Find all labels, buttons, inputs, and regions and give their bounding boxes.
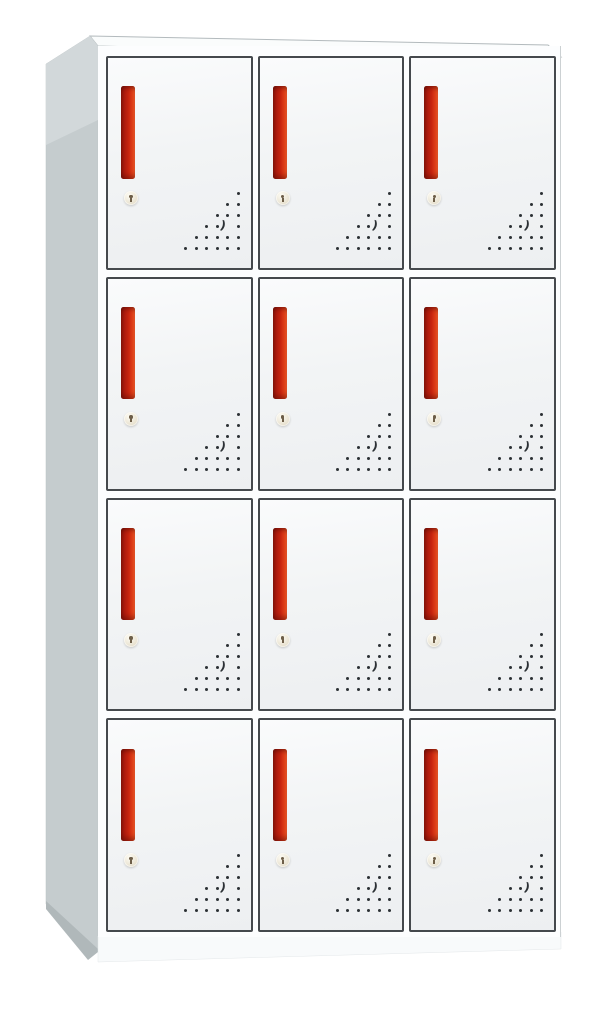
vent-hole — [205, 666, 208, 669]
vent-hole — [184, 688, 187, 691]
vent-hole — [216, 225, 219, 228]
keyhole-lock-icon — [276, 191, 290, 205]
vent-holes: ) — [479, 413, 543, 480]
vent-hole — [237, 236, 240, 239]
vent-hole — [388, 666, 391, 669]
vent-hole — [237, 898, 240, 901]
vent-hole — [216, 876, 219, 879]
vent-hole — [226, 644, 229, 647]
vent-hole — [540, 435, 543, 438]
vent-hole — [367, 247, 370, 250]
vent-hole — [378, 247, 381, 250]
vent-hole — [540, 887, 543, 890]
vent-hole — [498, 677, 501, 680]
vent-hole — [357, 446, 360, 449]
vent-hole — [226, 876, 229, 879]
vent-hole — [388, 677, 391, 680]
vent-hole — [195, 688, 198, 691]
vent-hole — [357, 887, 360, 890]
keyhole-lock-icon — [124, 191, 138, 205]
vent-hole — [540, 468, 543, 471]
vent-hole — [216, 909, 219, 912]
vent-hole — [367, 887, 370, 890]
vent-hole — [519, 898, 522, 901]
vent-hole — [540, 655, 543, 658]
locker-door: ) — [409, 718, 556, 932]
door-handle-icon — [424, 307, 438, 399]
vent-hole — [216, 887, 219, 890]
vent-hole — [388, 413, 391, 416]
vent-hole — [488, 688, 491, 691]
vent-crescent-hole: ) — [370, 881, 385, 897]
vent-hole — [237, 909, 240, 912]
door-handle-icon — [273, 307, 287, 399]
vent-hole — [378, 655, 381, 658]
vent-hole — [540, 203, 543, 206]
vent-hole — [237, 666, 240, 669]
vent-hole — [540, 865, 543, 868]
vent-hole — [530, 424, 533, 427]
vent-hole — [388, 435, 391, 438]
vent-hole — [367, 677, 370, 680]
vent-crescent-hole: ) — [522, 218, 537, 234]
vent-hole — [378, 909, 381, 912]
vent-hole — [205, 677, 208, 680]
cabinet-side-panel — [46, 36, 98, 959]
vent-hole — [498, 457, 501, 460]
vent-hole — [509, 468, 512, 471]
vent-hole — [530, 909, 533, 912]
vent-hole — [378, 688, 381, 691]
vent-hole — [205, 887, 208, 890]
vent-hole — [540, 236, 543, 239]
vent-hole — [498, 898, 501, 901]
vent-hole — [357, 909, 360, 912]
locker-door: ) — [409, 277, 556, 491]
vent-hole — [367, 666, 370, 669]
vent-hole — [346, 468, 349, 471]
vent-hole — [195, 677, 198, 680]
vent-hole — [357, 468, 360, 471]
vent-hole — [488, 909, 491, 912]
vent-hole — [226, 435, 229, 438]
vent-hole — [237, 677, 240, 680]
vent-hole — [498, 247, 501, 250]
vent-hole — [195, 898, 198, 901]
vent-hole — [388, 633, 391, 636]
vent-hole — [530, 236, 533, 239]
vent-hole — [519, 666, 522, 669]
vent-hole — [378, 424, 381, 427]
vent-crescent-hole: ) — [219, 218, 234, 234]
door-handle-icon — [121, 528, 135, 620]
vent-crescent-hole: ) — [219, 660, 234, 676]
vent-hole — [530, 898, 533, 901]
vent-hole — [519, 655, 522, 658]
vent-hole — [378, 898, 381, 901]
door-handle-icon — [273, 528, 287, 620]
vent-hole — [367, 236, 370, 239]
vent-hole — [346, 688, 349, 691]
vent-hole — [346, 898, 349, 901]
vent-hole — [540, 688, 543, 691]
vent-hole — [184, 247, 187, 250]
vent-hole — [226, 203, 229, 206]
locker-door-grid: ) ) ) ) ) ) ) ) ) — [106, 56, 556, 932]
vent-hole — [216, 457, 219, 460]
keyhole-lock-icon — [276, 853, 290, 867]
vent-hole — [216, 214, 219, 217]
vent-crescent-hole: ) — [370, 218, 385, 234]
vent-holes: ) — [327, 854, 391, 921]
vent-hole — [388, 854, 391, 857]
vent-hole — [346, 677, 349, 680]
vent-hole — [216, 468, 219, 471]
vent-hole — [195, 247, 198, 250]
vent-hole — [388, 236, 391, 239]
vent-hole — [205, 446, 208, 449]
vent-hole — [519, 909, 522, 912]
vent-holes: ) — [176, 192, 240, 259]
vent-hole — [216, 898, 219, 901]
vent-holes: ) — [176, 633, 240, 700]
vent-hole — [540, 225, 543, 228]
vent-hole — [336, 468, 339, 471]
vent-hole — [509, 457, 512, 460]
vent-hole — [530, 214, 533, 217]
vent-hole — [388, 192, 391, 195]
vent-hole — [530, 247, 533, 250]
locker-door: ) — [409, 498, 556, 712]
vent-hole — [216, 236, 219, 239]
vent-hole — [509, 446, 512, 449]
vent-hole — [519, 247, 522, 250]
vent-hole — [388, 898, 391, 901]
vent-hole — [336, 688, 339, 691]
vent-hole — [205, 457, 208, 460]
vent-hole — [388, 424, 391, 427]
vent-hole — [509, 236, 512, 239]
vent-hole — [519, 688, 522, 691]
keyhole-lock-icon — [427, 191, 441, 205]
vent-hole — [357, 898, 360, 901]
vent-hole — [237, 413, 240, 416]
locker-door: ) — [409, 56, 556, 270]
vent-hole — [519, 887, 522, 890]
vent-hole — [357, 688, 360, 691]
vent-hole — [346, 247, 349, 250]
vent-hole — [540, 457, 543, 460]
vent-hole — [509, 247, 512, 250]
vent-hole — [540, 413, 543, 416]
vent-hole — [367, 655, 370, 658]
vent-hole — [378, 435, 381, 438]
vent-hole — [519, 435, 522, 438]
vent-hole — [498, 688, 501, 691]
vent-hole — [388, 457, 391, 460]
vent-hole — [226, 247, 229, 250]
vent-hole — [216, 666, 219, 669]
vent-hole — [226, 909, 229, 912]
vent-hole — [367, 898, 370, 901]
vent-hole — [388, 655, 391, 658]
vent-hole — [540, 898, 543, 901]
vent-hole — [509, 909, 512, 912]
vent-hole — [237, 688, 240, 691]
keyhole-lock-icon — [124, 853, 138, 867]
vent-hole — [388, 468, 391, 471]
door-handle-icon — [273, 86, 287, 178]
vent-hole — [336, 909, 339, 912]
keyhole-lock-icon — [276, 633, 290, 647]
vent-hole — [367, 214, 370, 217]
vent-hole — [226, 457, 229, 460]
locker-door: ) — [106, 718, 253, 932]
vent-hole — [357, 457, 360, 460]
locker-door: ) — [106, 498, 253, 712]
vent-hole — [540, 854, 543, 857]
door-handle-icon — [121, 749, 135, 841]
keyhole-lock-icon — [427, 412, 441, 426]
vent-hole — [540, 446, 543, 449]
vent-hole — [378, 644, 381, 647]
vent-hole — [205, 225, 208, 228]
vent-hole — [530, 876, 533, 879]
product-photo-locker-cabinet: ) ) ) ) ) ) ) ) ) — [0, 0, 605, 1009]
vent-hole — [226, 655, 229, 658]
locker-door: ) — [106, 277, 253, 491]
vent-hole — [530, 457, 533, 460]
vent-hole — [509, 225, 512, 228]
vent-hole — [388, 225, 391, 228]
vent-hole — [367, 468, 370, 471]
vent-hole — [226, 688, 229, 691]
vent-hole — [195, 457, 198, 460]
vent-hole — [237, 214, 240, 217]
vent-hole — [519, 214, 522, 217]
vent-hole — [509, 887, 512, 890]
vent-hole — [226, 236, 229, 239]
door-handle-icon — [424, 528, 438, 620]
vent-hole — [195, 909, 198, 912]
vent-hole — [237, 203, 240, 206]
vent-hole — [184, 909, 187, 912]
door-handle-icon — [424, 86, 438, 178]
vent-hole — [357, 666, 360, 669]
vent-hole — [519, 876, 522, 879]
vent-hole — [357, 225, 360, 228]
vent-hole — [530, 688, 533, 691]
vent-hole — [498, 236, 501, 239]
vent-hole — [378, 865, 381, 868]
vent-hole — [216, 655, 219, 658]
vent-hole — [388, 644, 391, 647]
vent-crescent-hole: ) — [219, 881, 234, 897]
vent-hole — [388, 688, 391, 691]
vent-hole — [367, 225, 370, 228]
vent-hole — [205, 898, 208, 901]
keyhole-lock-icon — [124, 633, 138, 647]
vent-hole — [540, 214, 543, 217]
vent-hole — [346, 909, 349, 912]
vent-hole — [226, 898, 229, 901]
vent-hole — [540, 247, 543, 250]
keyhole-lock-icon — [427, 853, 441, 867]
vent-hole — [216, 247, 219, 250]
vent-hole — [530, 677, 533, 680]
vent-holes: ) — [176, 854, 240, 921]
vent-hole — [540, 424, 543, 427]
vent-hole — [509, 677, 512, 680]
vent-hole — [530, 468, 533, 471]
vent-hole — [519, 457, 522, 460]
vent-hole — [357, 247, 360, 250]
vent-hole — [237, 468, 240, 471]
vent-hole — [237, 644, 240, 647]
vent-hole — [237, 865, 240, 868]
door-handle-icon — [273, 749, 287, 841]
locker-door: ) — [258, 498, 405, 712]
keyhole-lock-icon — [427, 633, 441, 647]
locker-door: ) — [106, 56, 253, 270]
vent-hole — [509, 688, 512, 691]
vent-holes: ) — [479, 192, 543, 259]
vent-hole — [367, 446, 370, 449]
vent-hole — [367, 909, 370, 912]
vent-hole — [388, 887, 391, 890]
vent-hole — [237, 247, 240, 250]
vent-hole — [346, 457, 349, 460]
vent-hole — [237, 424, 240, 427]
vent-hole — [237, 446, 240, 449]
cabinet-front-face: ) ) ) ) ) ) ) ) ) — [98, 46, 561, 937]
vent-hole — [216, 688, 219, 691]
locker-door: ) — [258, 277, 405, 491]
vent-hole — [226, 214, 229, 217]
vent-hole — [530, 655, 533, 658]
vent-hole — [540, 909, 543, 912]
vent-hole — [367, 435, 370, 438]
vent-hole — [205, 688, 208, 691]
vent-hole — [357, 677, 360, 680]
vent-hole — [488, 247, 491, 250]
vent-hole — [519, 677, 522, 680]
locker-door: ) — [258, 718, 405, 932]
vent-hole — [378, 457, 381, 460]
door-handle-icon — [424, 749, 438, 841]
vent-crescent-hole: ) — [370, 439, 385, 455]
vent-hole — [216, 435, 219, 438]
vent-hole — [498, 468, 501, 471]
vent-hole — [237, 876, 240, 879]
vent-hole — [540, 876, 543, 879]
vent-hole — [498, 909, 501, 912]
vent-hole — [378, 677, 381, 680]
vent-hole — [388, 203, 391, 206]
vent-hole — [378, 876, 381, 879]
vent-hole — [216, 446, 219, 449]
vent-hole — [388, 876, 391, 879]
vent-hole — [346, 236, 349, 239]
vent-hole — [216, 677, 219, 680]
vent-hole — [237, 192, 240, 195]
vent-hole — [205, 468, 208, 471]
vent-hole — [237, 854, 240, 857]
vent-hole — [226, 865, 229, 868]
vent-hole — [184, 468, 187, 471]
door-handle-icon — [121, 307, 135, 399]
vent-hole — [226, 424, 229, 427]
vent-hole — [530, 435, 533, 438]
vent-hole — [357, 236, 360, 239]
keyhole-lock-icon — [124, 412, 138, 426]
vent-holes: ) — [479, 854, 543, 921]
vent-hole — [378, 236, 381, 239]
vent-hole — [509, 666, 512, 669]
vent-hole — [388, 909, 391, 912]
vent-hole — [205, 909, 208, 912]
vent-hole — [378, 203, 381, 206]
vent-crescent-hole: ) — [522, 439, 537, 455]
vent-hole — [530, 203, 533, 206]
vent-hole — [519, 225, 522, 228]
vent-hole — [488, 468, 491, 471]
vent-hole — [226, 468, 229, 471]
vent-hole — [336, 247, 339, 250]
vent-hole — [367, 457, 370, 460]
vent-hole — [540, 677, 543, 680]
vent-hole — [195, 468, 198, 471]
vent-hole — [237, 457, 240, 460]
keyhole-lock-icon — [276, 412, 290, 426]
vent-hole — [540, 666, 543, 669]
vent-hole — [540, 192, 543, 195]
vent-hole — [388, 247, 391, 250]
vent-hole — [226, 677, 229, 680]
vent-hole — [540, 644, 543, 647]
vent-crescent-hole: ) — [522, 881, 537, 897]
vent-hole — [530, 865, 533, 868]
vent-hole — [388, 865, 391, 868]
vent-hole — [367, 876, 370, 879]
vent-hole — [530, 644, 533, 647]
vent-hole — [195, 236, 198, 239]
vent-hole — [388, 446, 391, 449]
vent-hole — [237, 225, 240, 228]
vent-holes: ) — [479, 633, 543, 700]
vent-hole — [367, 688, 370, 691]
vent-hole — [388, 214, 391, 217]
vent-hole — [509, 898, 512, 901]
vent-hole — [237, 655, 240, 658]
door-handle-icon — [121, 86, 135, 178]
vent-hole — [205, 247, 208, 250]
vent-hole — [540, 633, 543, 636]
vent-hole — [519, 468, 522, 471]
vent-crescent-hole: ) — [370, 660, 385, 676]
vent-crescent-hole: ) — [219, 439, 234, 455]
vent-holes: ) — [327, 633, 391, 700]
vent-hole — [237, 887, 240, 890]
vent-holes: ) — [327, 192, 391, 259]
vent-holes: ) — [176, 413, 240, 480]
vent-hole — [237, 435, 240, 438]
vent-crescent-hole: ) — [522, 660, 537, 676]
vent-hole — [378, 214, 381, 217]
vent-hole — [237, 633, 240, 636]
locker-door: ) — [258, 56, 405, 270]
vent-hole — [519, 446, 522, 449]
